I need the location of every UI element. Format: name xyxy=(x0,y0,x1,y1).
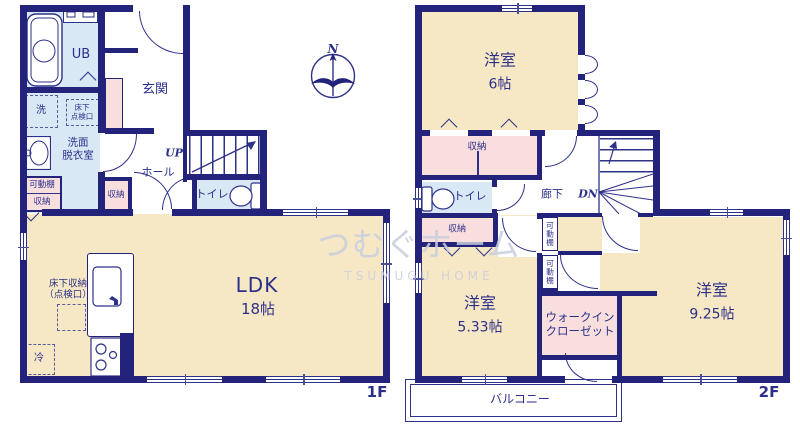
room-label-toilet-2f: トイレ xyxy=(454,189,487,202)
room-bedroom-6 xyxy=(422,12,578,130)
wall xyxy=(383,209,390,223)
room-size-ldk: 18帖 xyxy=(241,300,275,318)
label-floor-hatch: 床下点検口 xyxy=(71,103,94,121)
label-corridor: 廊下 xyxy=(541,187,563,200)
label-fridge: 冷 xyxy=(34,353,44,365)
door-arc xyxy=(139,11,183,54)
label-wic: ウォークインクローゼット xyxy=(546,311,615,339)
underfloor-storage xyxy=(57,304,86,331)
wall xyxy=(105,48,138,53)
wall xyxy=(415,130,430,136)
wall xyxy=(653,130,660,216)
window xyxy=(283,209,348,216)
casement-window xyxy=(585,55,598,74)
room-label-ub: UB xyxy=(72,47,90,63)
wall xyxy=(638,213,653,217)
wall xyxy=(415,213,498,218)
window xyxy=(502,5,532,12)
wall xyxy=(612,376,663,383)
room-label-ldk: LDK xyxy=(236,273,279,297)
label-storage-north: 収納 xyxy=(467,141,486,152)
floor-label-2f: 2F xyxy=(759,383,780,401)
sink-icon xyxy=(24,136,51,170)
wall xyxy=(98,5,105,133)
door-arc xyxy=(162,176,196,210)
wall xyxy=(20,5,27,216)
toilet-icon xyxy=(228,181,263,211)
divider xyxy=(477,151,479,175)
wall xyxy=(653,209,710,216)
window xyxy=(710,209,743,216)
wall xyxy=(128,181,132,211)
label-shelf-2: 可動棚 xyxy=(546,259,555,285)
window xyxy=(147,376,222,383)
shoe-cabinet xyxy=(105,78,123,130)
wall xyxy=(415,5,422,188)
window xyxy=(20,233,27,260)
room-label-toilet-1f: トイレ xyxy=(196,187,229,200)
window xyxy=(266,376,340,383)
wall xyxy=(468,130,492,136)
wall xyxy=(492,209,497,218)
room-label-bedroom925: 洋室 xyxy=(696,280,728,299)
stairs-up-arrow xyxy=(188,134,262,176)
wall xyxy=(578,99,585,105)
label-shelf-storage: 収納 xyxy=(33,197,50,207)
wall xyxy=(578,5,585,55)
label-washer: 洗 xyxy=(36,105,46,117)
wall xyxy=(542,355,622,360)
label-storage-small: 収納 xyxy=(448,225,466,236)
wall xyxy=(20,260,27,383)
wall xyxy=(415,376,462,383)
kitchen-sink-icon xyxy=(92,266,124,308)
window xyxy=(415,263,422,293)
window xyxy=(462,376,507,383)
casement-window xyxy=(585,80,598,99)
wall xyxy=(492,180,497,187)
room-size-bedroom925: 9.25帖 xyxy=(689,307,734,324)
window xyxy=(783,220,790,255)
room-label-genkan: 玄関 xyxy=(142,82,168,98)
stairs-winder xyxy=(597,134,655,216)
wall xyxy=(20,5,133,12)
divider xyxy=(24,193,60,194)
wall xyxy=(415,242,498,247)
door-arc xyxy=(545,136,577,167)
wall xyxy=(222,376,266,383)
label-underfloor-storage: 床下収納（点検口） xyxy=(44,279,92,302)
wall xyxy=(42,209,133,216)
door-arc xyxy=(103,134,137,172)
compass-north-label: N xyxy=(328,42,339,56)
toilet-icon xyxy=(421,185,456,213)
wall xyxy=(542,291,657,296)
label-shelf: 可動棚 xyxy=(29,180,55,190)
door-arc xyxy=(497,184,525,211)
wall xyxy=(187,130,267,136)
stove-icon xyxy=(90,337,123,377)
room-size-bedroom6: 6帖 xyxy=(489,77,512,94)
label-shelf-1: 可動棚 xyxy=(546,221,555,247)
label-dn: DN xyxy=(578,187,598,200)
room-size-bedroom533: 5.33帖 xyxy=(457,320,502,337)
wall xyxy=(183,5,190,132)
wall xyxy=(20,215,27,233)
wall xyxy=(537,130,542,180)
room-label-washroom: 洗面脱衣室 xyxy=(62,136,94,161)
wall xyxy=(260,130,267,216)
wall xyxy=(415,175,542,180)
wall xyxy=(105,128,154,134)
room-label-bedroom533: 洋室 xyxy=(464,293,496,312)
wall xyxy=(415,293,422,383)
bathtub-icon xyxy=(26,13,64,88)
window xyxy=(383,223,390,303)
wall xyxy=(415,5,502,12)
wall xyxy=(20,376,147,383)
window xyxy=(663,376,737,383)
wall xyxy=(617,296,622,383)
wall xyxy=(20,87,105,93)
wall xyxy=(558,251,602,255)
wall xyxy=(383,303,390,383)
wall xyxy=(783,209,790,220)
floor-plan: UB 玄関 洗 床下点検口 洗面脱衣室 可動棚 収納 UP ホール 収納 トイレ… xyxy=(0,0,800,431)
wall xyxy=(737,376,790,383)
wall xyxy=(558,213,602,217)
wall xyxy=(577,130,660,136)
label-hall-storage: 収納 xyxy=(107,190,124,200)
wall xyxy=(542,213,558,217)
room-label-bedroom6: 洋室 xyxy=(484,50,516,69)
wall xyxy=(172,209,283,216)
label-balcony: バルコニー xyxy=(490,392,550,406)
wall xyxy=(578,74,585,80)
wall xyxy=(537,253,542,383)
label-up: UP xyxy=(165,146,183,159)
floor-label-1f: 1F xyxy=(367,383,388,401)
casement-window xyxy=(585,105,598,124)
wall xyxy=(120,333,134,377)
wall xyxy=(783,255,790,383)
wall xyxy=(507,376,565,383)
room-label-hall: ホール xyxy=(142,165,175,178)
